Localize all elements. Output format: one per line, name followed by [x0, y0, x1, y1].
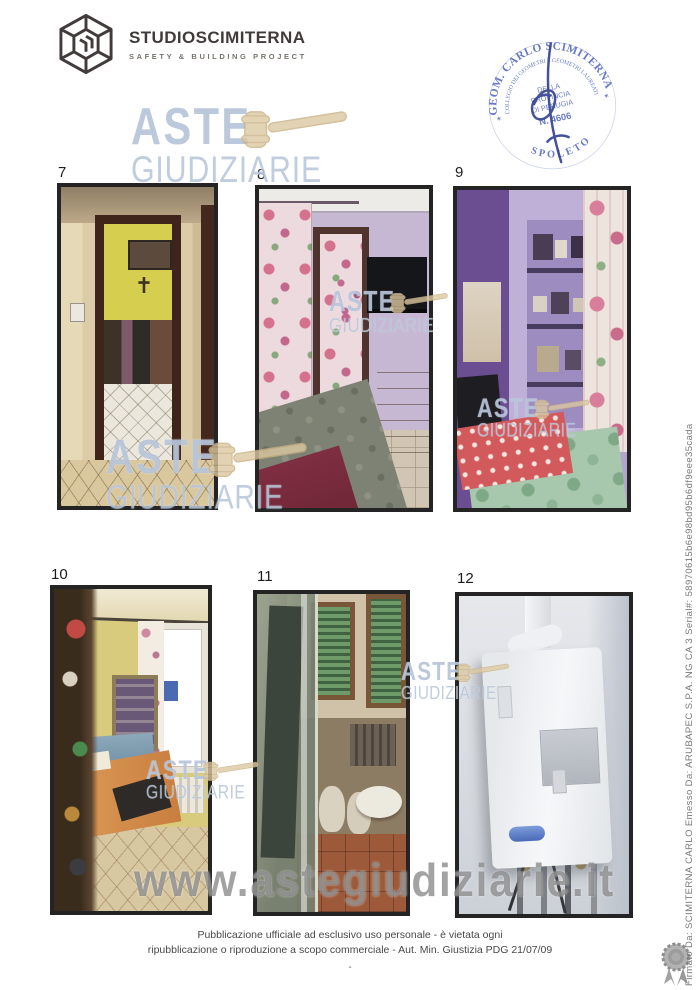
geometra-stamp: GEOM. CARLO SCIMITERNA COLLEGIO DEI GEOM…: [470, 23, 636, 189]
footer-line-2: ripubblicazione o riproduzione a scopo c…: [30, 943, 670, 958]
photo-9-bedroom: [453, 186, 631, 512]
photo-10-number: 10: [51, 566, 68, 583]
framed-photos: [531, 228, 585, 262]
boiler-label: [497, 686, 513, 719]
logo-text: STUDIOSCIMITERNA SAFETY & BUILDING PROJE…: [129, 28, 307, 61]
blue-picture: [164, 681, 178, 701]
gas-boiler: [481, 647, 612, 869]
radiator: [350, 724, 396, 766]
document-page: STUDIOSCIMITERNA SAFETY & BUILDING PROJE…: [0, 0, 700, 990]
sink: [356, 786, 402, 818]
photo-11-number: 11: [257, 568, 273, 585]
studio-logo: STUDIOSCIMITERNA SAFETY & BUILDING PROJE…: [55, 12, 307, 76]
shower-glass: [257, 594, 318, 916]
boiler-display: [509, 825, 546, 842]
photo-12-boiler: [455, 592, 633, 918]
tiled-floor: [92, 827, 208, 911]
butterfly-decals: [335, 275, 367, 323]
floral-curtain: [259, 203, 312, 420]
photo-8-bedroom: [255, 185, 433, 512]
trinkets: [531, 286, 585, 316]
gavel-icon: [235, 106, 353, 165]
photo-8-number: 8: [257, 166, 265, 183]
stamp-star-right: ✶: [603, 91, 611, 101]
shelf-niche: [527, 220, 589, 428]
shower-panel: [261, 605, 304, 858]
shelf: [527, 324, 589, 329]
wall-cross: ✝: [134, 274, 154, 300]
digital-signature-strip: Firmato Da: SCIMITERNA CARLO Emesso Da: …: [684, 300, 697, 986]
framed-picture: [128, 240, 172, 270]
footer: Pubblicazione ufficiale ad esclusivo uso…: [30, 928, 670, 975]
wall-artwork: [463, 282, 501, 362]
hallway-floor: [61, 460, 214, 506]
watermark-word1: ASTE: [131, 104, 323, 151]
white-tiled-floor: [104, 384, 172, 463]
photo-11-bathroom: [253, 590, 410, 916]
shelf-items: [56, 599, 96, 899]
shelf: [527, 382, 589, 387]
stamp-star-left: ✶: [495, 114, 503, 124]
wall-tv: [367, 257, 427, 313]
photo-10-bedroom: [50, 585, 212, 915]
footer-line-1: Pubblicazione ufficiale ad esclusivo uso…: [30, 928, 670, 943]
shelf: [527, 268, 589, 273]
room-through-door: ✝: [104, 224, 172, 463]
brand-name: STUDIOSCIMITERNA: [129, 28, 307, 48]
floral-curtain: [583, 190, 631, 452]
boiler-sticker: [552, 769, 567, 794]
ornaments: [531, 340, 585, 374]
hexagon-logo-icon: [55, 12, 117, 76]
toilet: [319, 786, 345, 832]
glass-highlight: [301, 594, 307, 916]
photo-9-number: 9: [455, 164, 463, 181]
thermostat: [70, 303, 85, 322]
footer-page-dash: -: [30, 960, 670, 975]
boiler-panel: [540, 727, 601, 786]
window-green-shutters: [366, 594, 406, 708]
door-frame: ✝: [95, 215, 181, 463]
photo-7-hallway: ✝: [57, 183, 218, 510]
room-furniture: [104, 320, 172, 390]
second-door-edge: [201, 205, 214, 471]
watermark-aste-1: ASTE GIUDIZIARIE: [131, 104, 371, 189]
photo-12-number: 12: [457, 570, 474, 587]
photo-7-number: 7: [58, 164, 66, 181]
brand-tagline: SAFETY & BUILDING PROJECT: [129, 52, 307, 61]
